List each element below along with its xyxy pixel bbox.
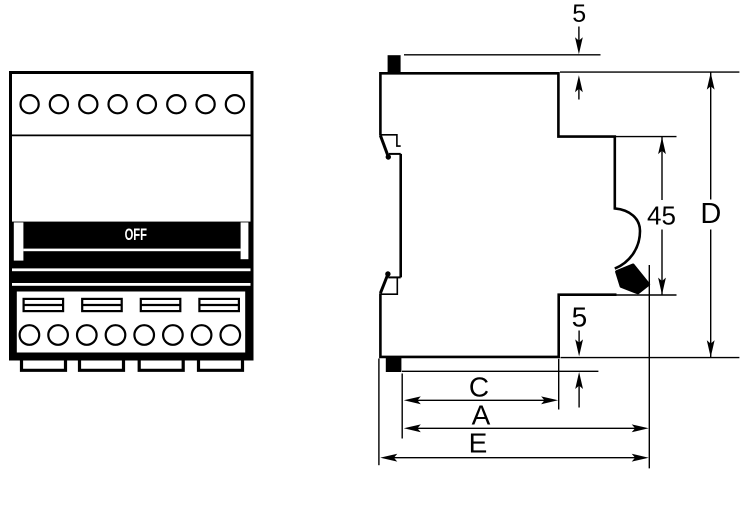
svg-text:5: 5 <box>572 0 586 28</box>
svg-text:5: 5 <box>572 301 588 332</box>
svg-text:45: 45 <box>647 200 676 230</box>
svg-text:E: E <box>469 428 488 459</box>
svg-text:A: A <box>472 399 491 430</box>
svg-text:C: C <box>469 371 489 402</box>
svg-text:OFF: OFF <box>125 225 148 244</box>
svg-text:D: D <box>700 198 721 230</box>
